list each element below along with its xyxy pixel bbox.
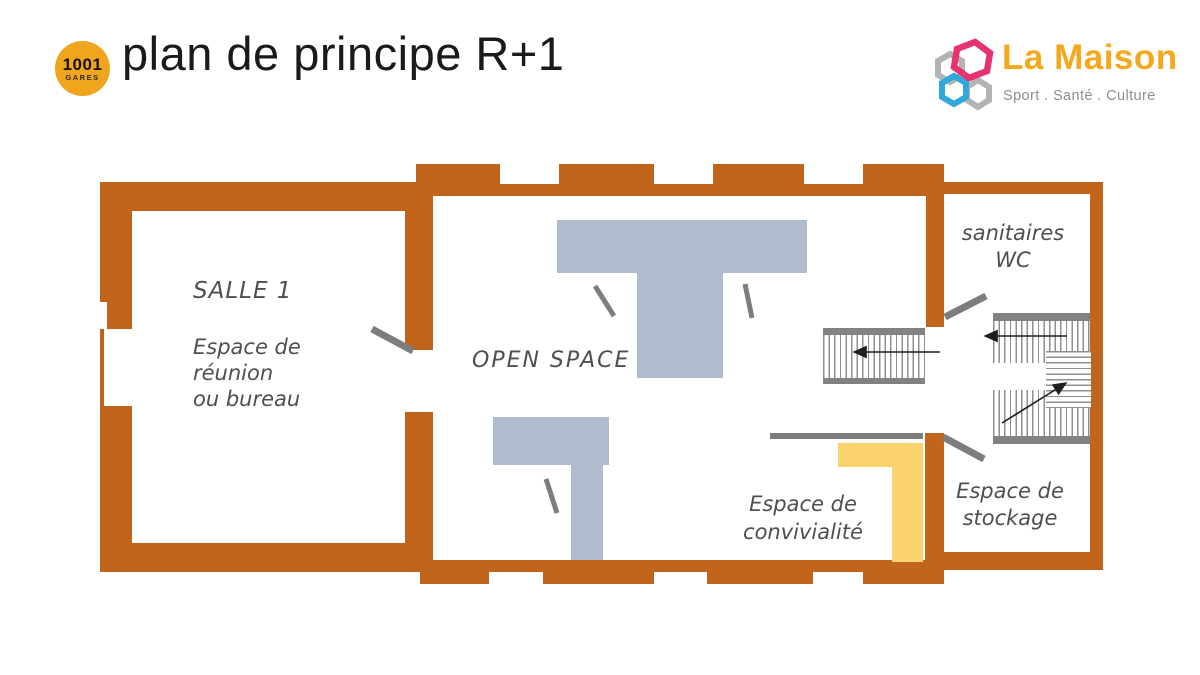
- wall-salle1-right-lower: [405, 412, 433, 572]
- wall-pillar: [416, 164, 500, 184]
- wall-pillar: [707, 572, 813, 584]
- door-swing-open-space-right: [745, 284, 752, 318]
- logo-1001-text: 1001: [63, 56, 103, 73]
- la-maison-hexagons-icon: [928, 38, 1000, 112]
- wall-salle1-top: [100, 182, 433, 211]
- room-label-sanitaires: sanitaires WC: [950, 220, 1076, 274]
- room-label-stockage: Espace de stockage: [945, 478, 1075, 532]
- wall-pillar: [863, 164, 944, 184]
- counter-convivialite-stem: [892, 443, 923, 562]
- page-title: plan de principe R+1: [122, 26, 564, 81]
- room-label-line: sanitaires: [950, 220, 1076, 247]
- staircase-right-middle-run: [1046, 351, 1091, 408]
- staircase-corridor: [823, 328, 925, 384]
- table-t-stem: [637, 273, 723, 378]
- logo-1001-gares: 1001 GARES: [55, 41, 110, 96]
- door-swing-corridor-bottom: [943, 437, 984, 459]
- room-desc-line: réunion: [193, 360, 301, 386]
- door-swing-open-space-left: [595, 286, 614, 316]
- room-desc-line: Espace de: [193, 334, 301, 360]
- room-label-line: convivialité: [733, 518, 873, 546]
- room-label-convivialite: Espace de convivialité: [733, 490, 873, 546]
- wall-pillar: [420, 572, 489, 584]
- wall-divider-lower: [925, 433, 944, 570]
- partition-convivialite: [770, 433, 923, 439]
- wall-salle1-bottom: [100, 543, 433, 572]
- window-notch: [100, 302, 107, 329]
- wall-top-band: [433, 184, 944, 196]
- brand-name: La Maison: [1002, 38, 1178, 78]
- door-swing-corridor-top: [945, 296, 986, 317]
- room-label-salle1: SALLE 1: [193, 278, 292, 304]
- room-label-line: stockage: [945, 505, 1075, 532]
- wall-salle1-right-upper: [405, 182, 433, 350]
- wall-divider-upper: [926, 184, 944, 327]
- logo-gares-text: GARES: [65, 73, 99, 82]
- wall-pillar: [559, 164, 654, 184]
- table-l-stem: [571, 417, 603, 560]
- room-label-line: Espace de: [733, 490, 873, 518]
- wall-right-bottom: [944, 552, 1090, 570]
- room-label-open-space: OPEN SPACE: [472, 348, 630, 373]
- room-desc-salle1: Espace de réunion ou bureau: [193, 334, 301, 412]
- wall-pillar: [543, 572, 654, 584]
- room-label-line: WC: [950, 247, 1076, 274]
- wall-bottom-band: [407, 560, 944, 572]
- window-opening: [104, 329, 132, 406]
- wall-right-top: [944, 182, 1103, 194]
- room-label-line: Espace de: [945, 478, 1075, 505]
- floor-plan-slide: 1001 GARES plan de principe R+1 La Maiso…: [0, 0, 1200, 675]
- wall-right-outer: [1090, 182, 1103, 570]
- wall-pillar: [713, 164, 804, 184]
- door-swing-open-space-lower: [546, 479, 557, 513]
- table-t-bar: [557, 220, 807, 273]
- wall-pillar: [863, 572, 944, 584]
- brand-tagline: Sport . Santé . Culture: [1003, 88, 1156, 104]
- room-desc-line: ou bureau: [193, 386, 301, 412]
